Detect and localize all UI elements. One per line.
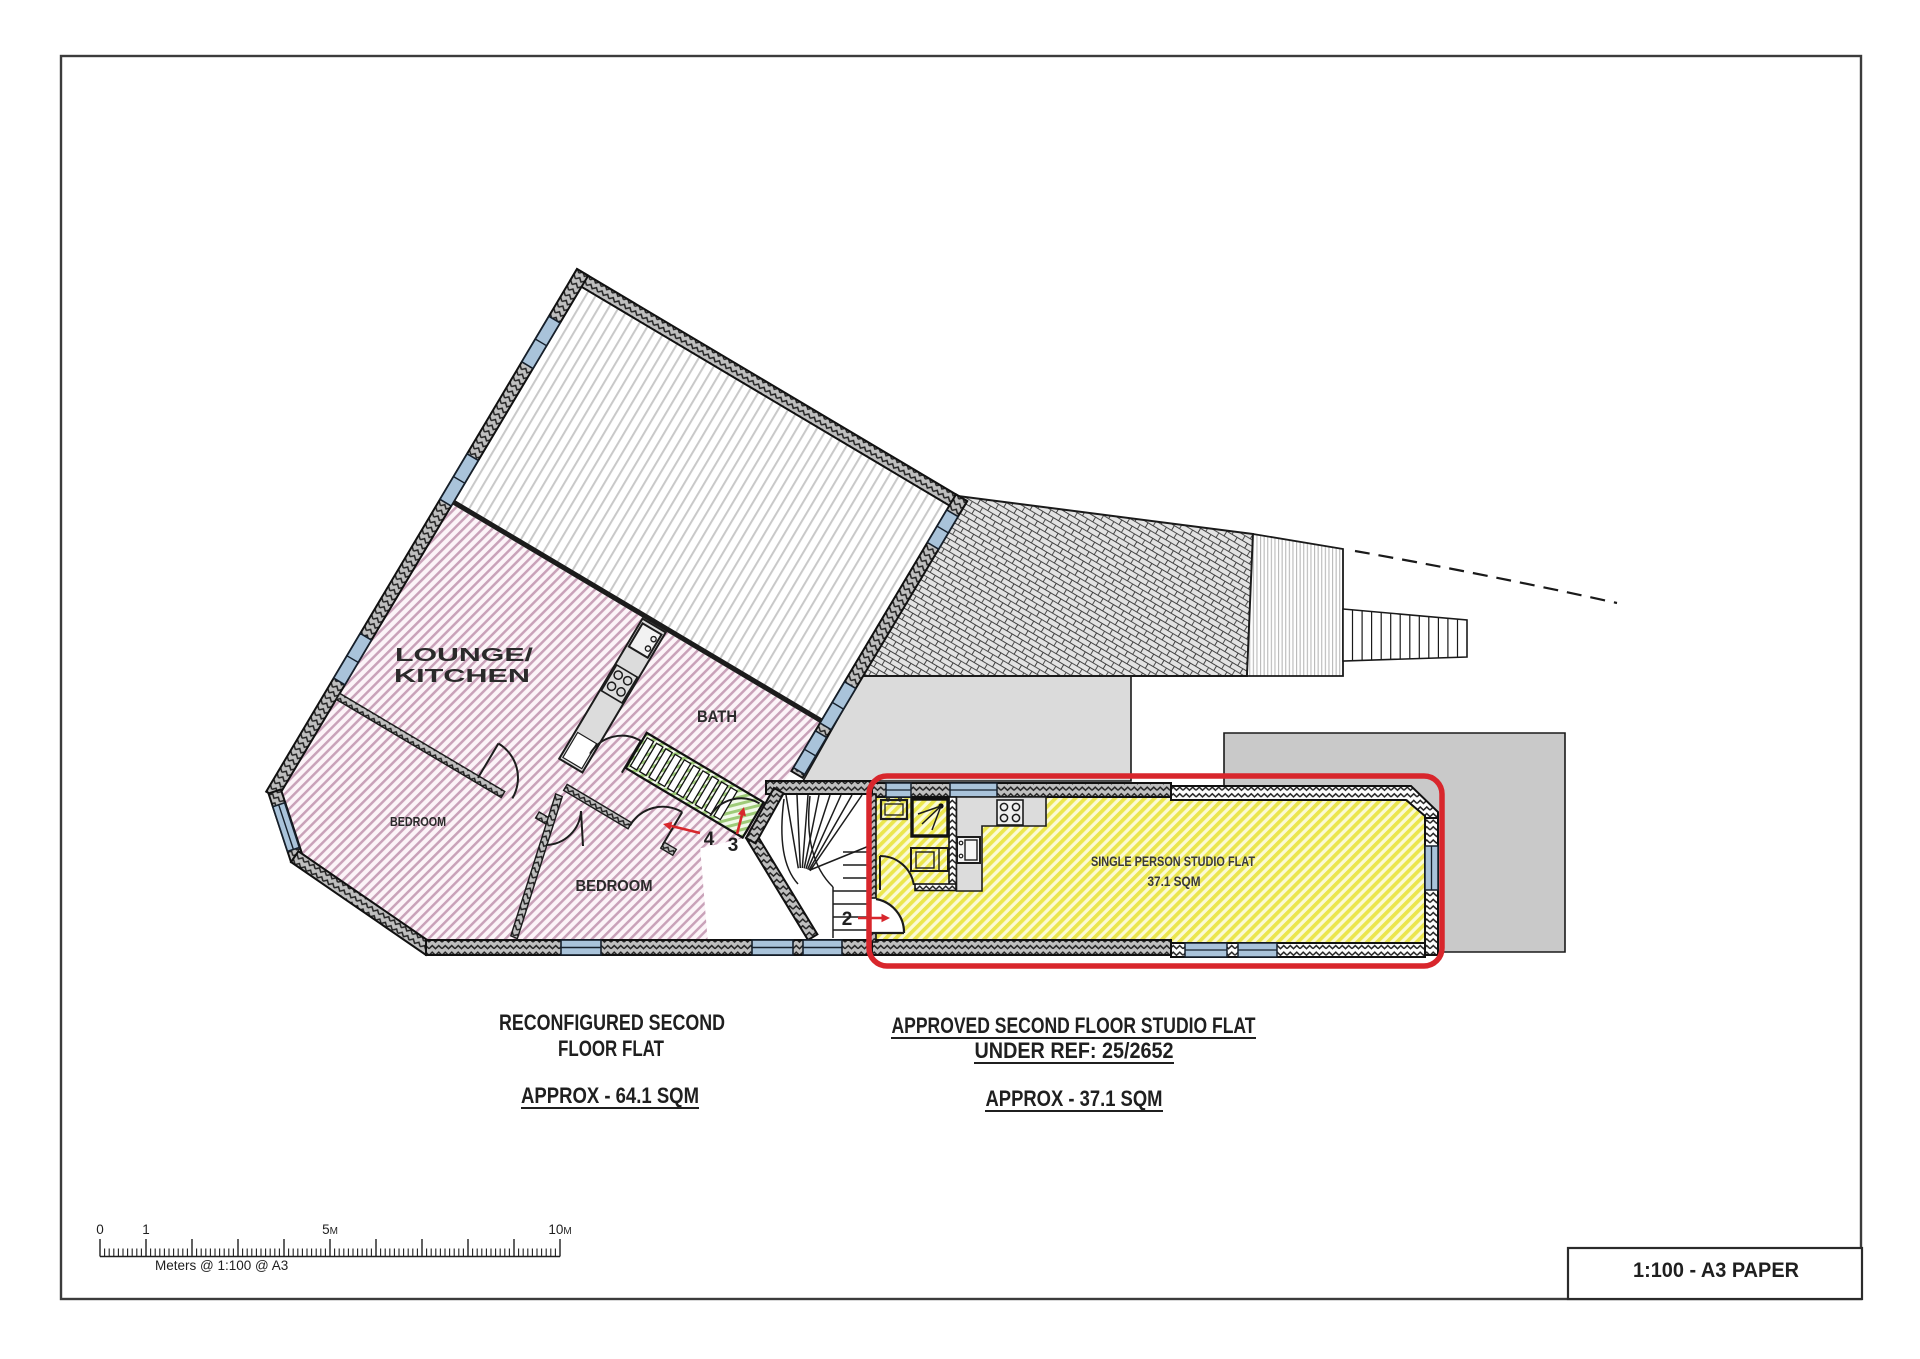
svg-text:BEDROOM: BEDROOM	[576, 878, 653, 895]
svg-text:LOUNGE/: LOUNGE/	[395, 645, 533, 665]
svg-text:APPROX - 37.1 SQM: APPROX - 37.1 SQM	[986, 1086, 1163, 1111]
svg-text:1:100 - A3 PAPER: 1:100 - A3 PAPER	[1633, 1259, 1799, 1282]
svg-text:KITCHEN: KITCHEN	[394, 666, 530, 686]
svg-text:4: 4	[704, 829, 715, 850]
svg-text:APPROX - 64.1 SQM: APPROX - 64.1 SQM	[521, 1083, 699, 1108]
svg-text:Meters @ 1:100 @ A3: Meters @ 1:100 @ A3	[155, 1258, 288, 1273]
svg-text:2: 2	[842, 909, 853, 930]
svg-text:3: 3	[728, 835, 739, 856]
svg-text:APPROVED SECOND FLOOR STUDIO F: APPROVED SECOND FLOOR STUDIO FLAT	[892, 1013, 1256, 1038]
svg-text:SINGLE PERSON STUDIO FLAT: SINGLE PERSON STUDIO FLAT	[1091, 853, 1255, 869]
svg-text:BEDROOM: BEDROOM	[390, 815, 446, 829]
svg-text:0: 0	[96, 1222, 104, 1237]
svg-text:1: 1	[142, 1222, 150, 1237]
svg-text:BATH: BATH	[697, 707, 737, 726]
svg-text:UNDER REF: 25/2652: UNDER REF: 25/2652	[975, 1038, 1174, 1063]
svg-text:FLOOR FLAT: FLOOR FLAT	[558, 1036, 664, 1061]
svg-text:37.1 SQM: 37.1 SQM	[1148, 873, 1201, 889]
svg-text:RECONFIGURED SECOND: RECONFIGURED SECOND	[499, 1010, 725, 1035]
